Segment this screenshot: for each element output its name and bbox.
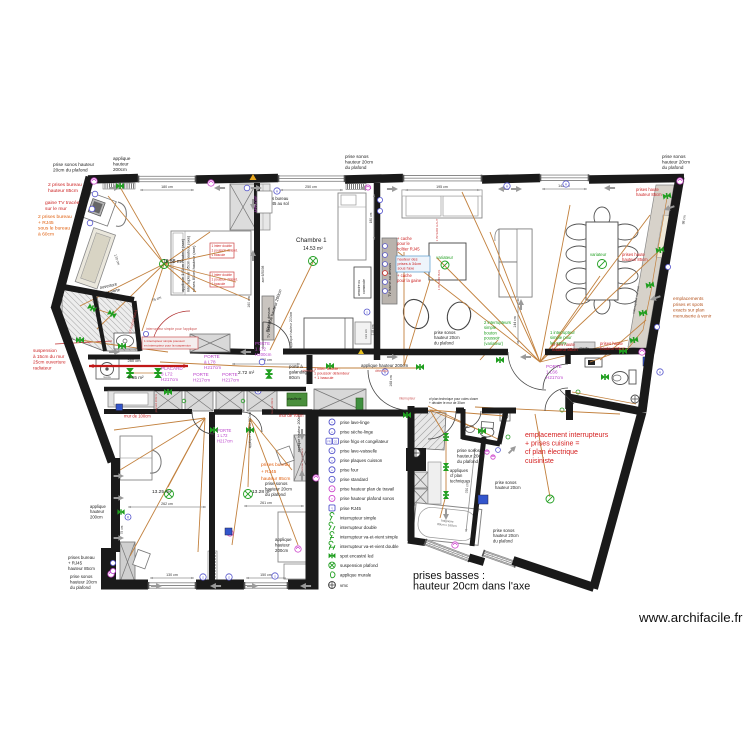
svg-text:prise RJ45: prise RJ45 (340, 506, 362, 511)
svg-text:hauteur: hauteur (275, 542, 290, 547)
svg-text:spot encastré led: spot encastré led (340, 554, 374, 559)
svg-text:130 cm: 130 cm (166, 573, 178, 577)
svg-text:les spots: les spots (550, 340, 567, 345)
svg-text:+ prises cuisine =: + prises cuisine = (525, 441, 579, 448)
svg-text:hauteur 85cm: hauteur 85cm (622, 257, 648, 262)
svg-text:pour la gaine: pour la gaine (397, 278, 422, 283)
svg-text:180 cm: 180 cm (369, 212, 373, 223)
svg-text:1 L66: 1 L66 (546, 370, 558, 375)
svg-text:du plafond: du plafond (70, 585, 91, 590)
svg-text:en interrupteur pour la suspen: en interrupteur pour la suspension (144, 344, 191, 348)
svg-text:suspension: suspension (33, 348, 57, 353)
svg-text:3 L72: 3 L72 (161, 372, 173, 377)
svg-text:techniques: techniques (450, 478, 470, 483)
svg-text:H217cm: H217cm (193, 378, 210, 383)
svg-text:prise lave-vaisselle: prise lave-vaisselle (340, 448, 378, 453)
svg-text:PORTE: PORTE (255, 341, 270, 346)
svg-text:interrupteur simple: interrupteur simple (340, 515, 377, 520)
svg-text:armoire ou: armoire ou (357, 280, 361, 296)
svg-text:150 cm: 150 cm (260, 573, 272, 577)
svg-text:du plafond: du plafond (493, 538, 513, 543)
svg-text:250 cm: 250 cm (305, 185, 317, 189)
svg-text:+ 1 bascule: + 1 bascule (314, 376, 334, 380)
svg-text:applique 140cm hauteur (axe): applique 140cm hauteur (axe) (180, 238, 185, 292)
svg-text:hauteur 85cm: hauteur 85cm (68, 566, 95, 571)
svg-text:prise sonos: prise sonos (265, 481, 288, 486)
svg-text:interrupteur va-et-vient doubl: interrupteur va-et-vient double (340, 544, 399, 549)
svg-text:1 INTERR HAUT: 1 INTERR HAUT (435, 219, 439, 242)
svg-text:H217cm: H217cm (222, 378, 239, 383)
svg-text:prise standard: prise standard (340, 477, 368, 482)
svg-text:prise sèche-linge: prise sèche-linge (340, 429, 374, 434)
svg-text:195 cm: 195 cm (436, 185, 448, 189)
svg-text:prise sonos hauteur: prise sonos hauteur (53, 162, 95, 167)
svg-text:prise plaques cuisson: prise plaques cuisson (340, 458, 383, 463)
svg-text:(variateur): (variateur) (484, 341, 504, 346)
svg-text:H217cm: H217cm (161, 377, 178, 382)
svg-text:hauteur 85cm: hauteur 85cm (552, 347, 578, 352)
svg-text:160 cm: 160 cm (247, 296, 251, 307)
svg-text:du plafond: du plafond (434, 340, 454, 345)
svg-text:PORTE: PORTE (204, 354, 220, 359)
svg-text:prise sonos: prise sonos (345, 154, 369, 159)
svg-text:200cm: 200cm (113, 167, 127, 172)
svg-text:18.58 m²: 18.58 m² (163, 259, 183, 265)
svg-text:1 interr double: 1 interr double (212, 244, 233, 248)
svg-text:hauteur 20cm: hauteur 20cm (662, 160, 690, 165)
svg-text:boîtier RJ45: boîtier RJ45 (397, 246, 420, 251)
svg-text:applique: applique (275, 537, 292, 542)
svg-text:prises à 34cm: prises à 34cm (398, 262, 422, 266)
svg-text:vmc: vmc (340, 583, 349, 588)
svg-text:prise frigo et congélateur: prise frigo et congélateur (340, 439, 389, 444)
svg-text:TV frame au dessus: TV frame au dessus (388, 263, 392, 297)
svg-text:mur de 100cm: mur de 100cm (124, 414, 151, 419)
svg-text:+ RJ45: + RJ45 (38, 220, 54, 226)
svg-text:PORTE: PORTE (222, 372, 238, 377)
svg-text:applique murale: applique murale (340, 573, 372, 578)
svg-text:prise hauteur plafond sonos: prise hauteur plafond sonos (340, 496, 395, 501)
svg-text:mur de 70cm: mur de 70cm (279, 413, 304, 418)
svg-text:+ décaler le mur de 30cm: + décaler le mur de 30cm (429, 401, 465, 405)
svg-text:131 cm: 131 cm (364, 329, 368, 339)
svg-text:262 cm: 262 cm (161, 502, 173, 506)
svg-text:radiateur: radiateur (33, 365, 52, 370)
svg-text:13.28 m²: 13.28 m² (252, 489, 271, 495)
svg-text:prise hauteur plan de travail: prise hauteur plan de travail (340, 487, 394, 492)
svg-text:PLACARD: PLACARD (161, 366, 183, 371)
svg-text:75 cm: 75 cm (120, 525, 124, 534)
svg-text:prise lave-linge: prise lave-linge (340, 420, 370, 425)
svg-text:à L78: à L78 (204, 360, 216, 365)
svg-text:applique hauteur 200cm: applique hauteur 200cm (361, 363, 408, 368)
svg-text:hauteur 20cm: hauteur 20cm (345, 160, 373, 165)
svg-text:hauteur 85cm: hauteur 85cm (600, 346, 626, 351)
svg-text:118 cm: 118 cm (371, 324, 375, 335)
svg-text:cf plan électrique: cf plan électrique (525, 449, 578, 456)
svg-text:168 cm: 168 cm (389, 375, 393, 386)
svg-text:prise four: prise four (340, 468, 359, 473)
svg-text:1 L72: 1 L72 (255, 346, 267, 351)
svg-text:www.archifacile.fr: www.archifacile.fr (638, 610, 743, 625)
svg-text:prises 80cm hauteur (axe): prises 80cm hauteur (axe) (191, 245, 196, 292)
svg-text:144 cm: 144 cm (513, 316, 517, 327)
svg-text:Chambre 1: Chambre 1 (296, 237, 327, 244)
svg-text:PORTE: PORTE (193, 372, 209, 377)
svg-text:du plafond: du plafond (457, 459, 479, 464)
svg-text:H217cm: H217cm (217, 438, 233, 443)
svg-text:13.25 m²: 13.25 m² (152, 489, 171, 495)
svg-text:interrupteur va-et-vient simpl: interrupteur va-et-vient simple (340, 534, 399, 539)
svg-text:6.55 m²: 6.55 m² (128, 375, 144, 380)
svg-text:2.72 m²: 2.72 m² (238, 370, 255, 376)
svg-text:interrupteur: interrupteur (399, 397, 416, 401)
svg-text:2 prises bureau: 2 prises bureau (38, 214, 72, 220)
svg-text:PORTE: PORTE (546, 364, 562, 369)
svg-text:cuisiniste: cuisiniste (525, 458, 554, 465)
svg-text:interrupteur double: interrupteur double (340, 525, 377, 530)
svg-text:H217cm: H217cm (546, 375, 563, 380)
svg-text:200cm: 200cm (275, 548, 289, 553)
svg-text:sur le mur: sur le mur (45, 206, 67, 212)
svg-text:H200cm: H200cm (255, 352, 272, 357)
svg-text:axe 6/50/98: axe 6/50/98 (261, 265, 265, 282)
svg-text:applique hauteur 200cm: applique hauteur 200cm (289, 312, 293, 349)
svg-text:1 interr double :: 1 interr double : (314, 367, 340, 371)
svg-text:80cm: 80cm (289, 375, 300, 380)
svg-text:porte à: porte à (289, 364, 303, 369)
svg-text:placard 200cm: placard 200cm (154, 393, 158, 412)
svg-text:hauteur 20cm: hauteur 20cm (457, 454, 485, 459)
svg-text:sous l'axe: sous l'axe (398, 267, 415, 271)
svg-text:du plafond: du plafond (345, 165, 367, 170)
svg-text:prise sonos: prise sonos (662, 154, 686, 159)
svg-text:1 poussoir détend.: 1 poussoir détend. (212, 249, 238, 253)
svg-text:25cm ouverture: 25cm ouverture (33, 360, 66, 365)
svg-text:hauteur: hauteur (113, 162, 129, 167)
svg-text:1 INTERR BAS: 1 INTERR BAS (437, 270, 441, 291)
svg-text:hauteur 20cm dans l'axe: hauteur 20cm dans l'axe (413, 581, 530, 593)
svg-text:applique hauteur 200cm: applique hauteur 200cm (297, 414, 301, 453)
svg-text:variateur: variateur (590, 252, 607, 257)
svg-text:commode: commode (362, 279, 366, 294)
svg-text:gaine TV tracée: gaine TV tracée (45, 200, 80, 206)
svg-text:hauteur 85cm: hauteur 85cm (636, 192, 662, 197)
svg-text:exacts sur plan: exacts sur plan (673, 308, 705, 313)
svg-text:applique: applique (113, 156, 131, 161)
svg-text:hauteur 20cm: hauteur 20cm (495, 485, 521, 490)
svg-text:prise sonos: prise sonos (457, 448, 481, 453)
svg-text:prises bureau: prises bureau (68, 555, 95, 560)
svg-text:prises bureau: prises bureau (261, 462, 290, 468)
svg-text:à 60cm: à 60cm (38, 231, 54, 237)
svg-text:+ RJ45: + RJ45 (261, 469, 277, 475)
svg-text:H217cm: H217cm (204, 365, 221, 370)
svg-text:2 prises bureau: 2 prises bureau (48, 182, 82, 188)
svg-text:suspension plafond: suspension plafond (340, 563, 378, 568)
svg-text:200cm: 200cm (90, 514, 103, 519)
svg-text:sous le bureau: sous le bureau (38, 226, 70, 232)
svg-text:à 15cm du mur: à 15cm du mur (33, 354, 65, 359)
svg-text:prise sonos: prise sonos (70, 574, 93, 579)
svg-text:20cm du plafond: 20cm du plafond (53, 168, 88, 173)
svg-text:1 poussoir détendeur: 1 poussoir détendeur (314, 372, 350, 376)
svg-text:prises et spots: prises et spots (673, 302, 704, 307)
svg-text:+ RJ45: + RJ45 (68, 560, 83, 565)
svg-text:emplacement interrupteurs: emplacement interrupteurs (525, 432, 609, 439)
svg-text:applique hauteur 200cm: applique hauteur 200cm (248, 412, 252, 449)
svg-text:hauteur 85cm: hauteur 85cm (48, 188, 78, 194)
svg-text:mur de 30cm: mur de 30cm (270, 397, 274, 414)
svg-text:chaufferie: chaufferie (287, 397, 302, 401)
svg-text:menuiserie à venir: menuiserie à venir (673, 313, 712, 318)
svg-text:du plafond: du plafond (662, 165, 684, 170)
svg-text:hauteur des: hauteur des (398, 258, 418, 262)
svg-text:hauteur 20cm: hauteur 20cm (70, 579, 97, 584)
svg-text:détecteur: détecteur (375, 369, 389, 373)
svg-text:261 cm: 261 cm (260, 501, 272, 505)
svg-text:14.53 m²: 14.53 m² (303, 246, 323, 252)
svg-text:galandage: galandage (289, 369, 310, 374)
svg-text:1 interrupteur simple poussoir: 1 interrupteur simple poussoir (144, 339, 185, 343)
svg-text:meuble: meuble (103, 376, 112, 379)
svg-text:280 cm: 280 cm (127, 358, 141, 363)
svg-text:FR: FR (327, 440, 330, 443)
svg-text:emplacements: emplacements (673, 296, 704, 301)
svg-text:CG: CG (334, 440, 338, 443)
svg-text:interrupteur simple pour l'app: interrupteur simple pour l'applique (146, 327, 197, 331)
svg-text:1 bascule: 1 bascule (212, 282, 226, 286)
svg-text:180 cm: 180 cm (161, 185, 173, 189)
